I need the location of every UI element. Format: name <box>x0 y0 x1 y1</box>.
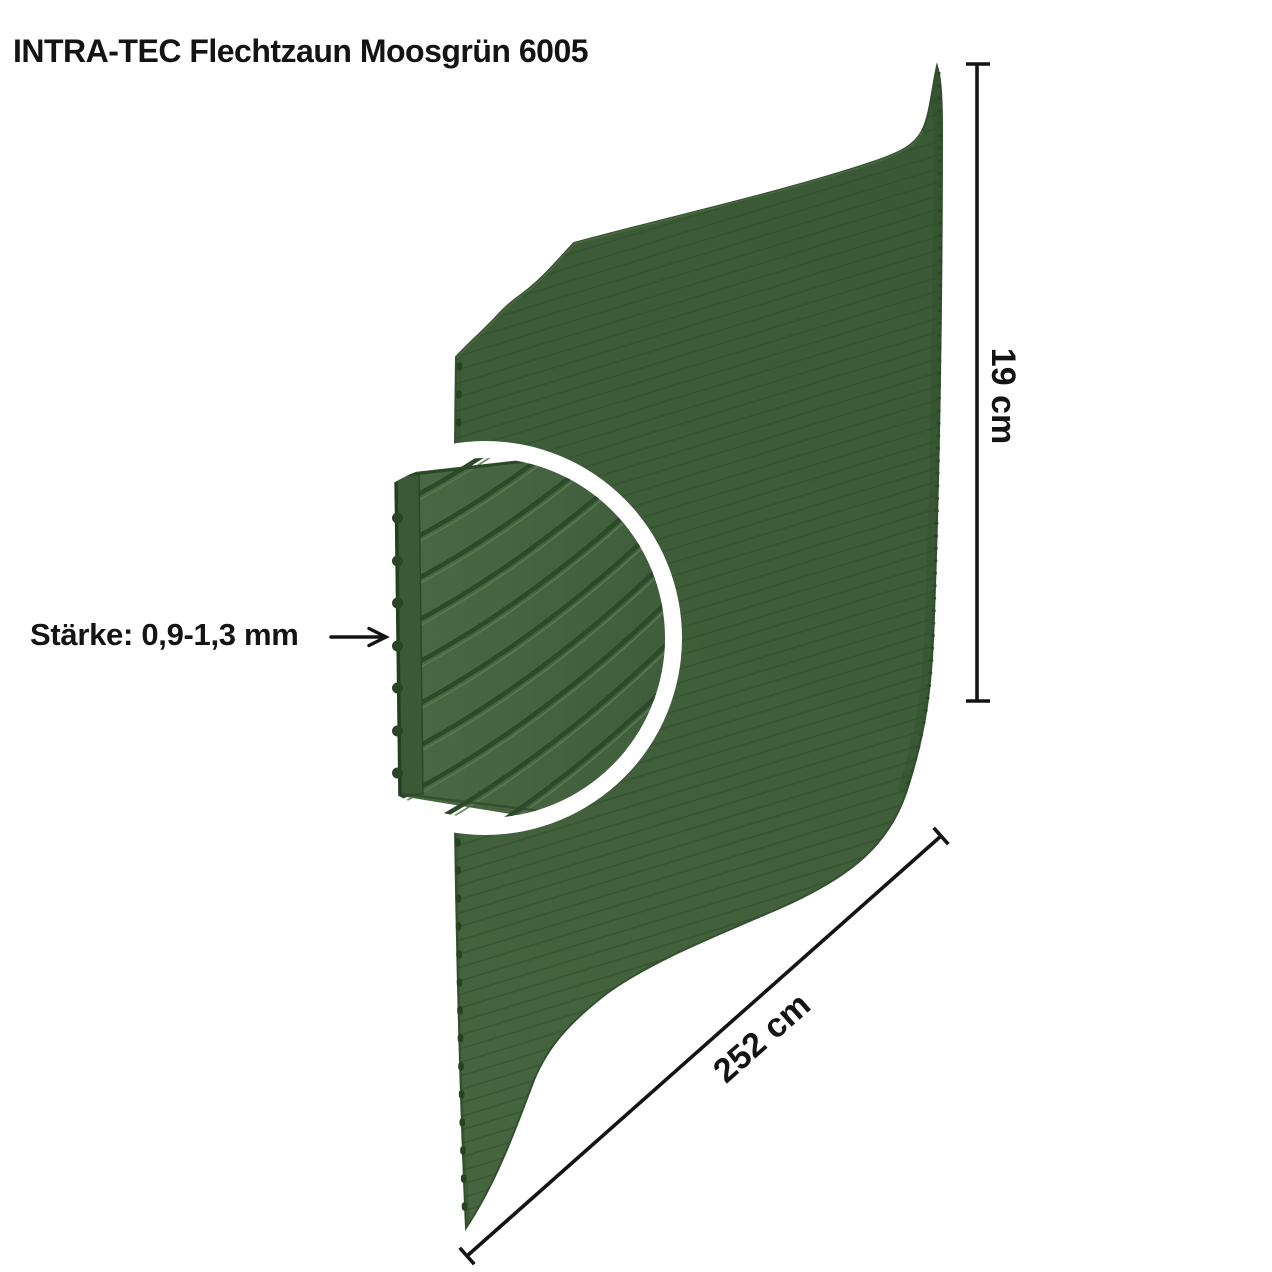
height-dimension-label: 19 cm <box>984 348 1022 444</box>
length-dimension-label: 252 cm <box>706 986 818 1091</box>
product-diagram: INTRA-TEC Flechtzaun Moosgrün 6005 <box>0 0 1272 1272</box>
thickness-label: Stärke: 0,9-1,3 mm <box>30 617 299 653</box>
